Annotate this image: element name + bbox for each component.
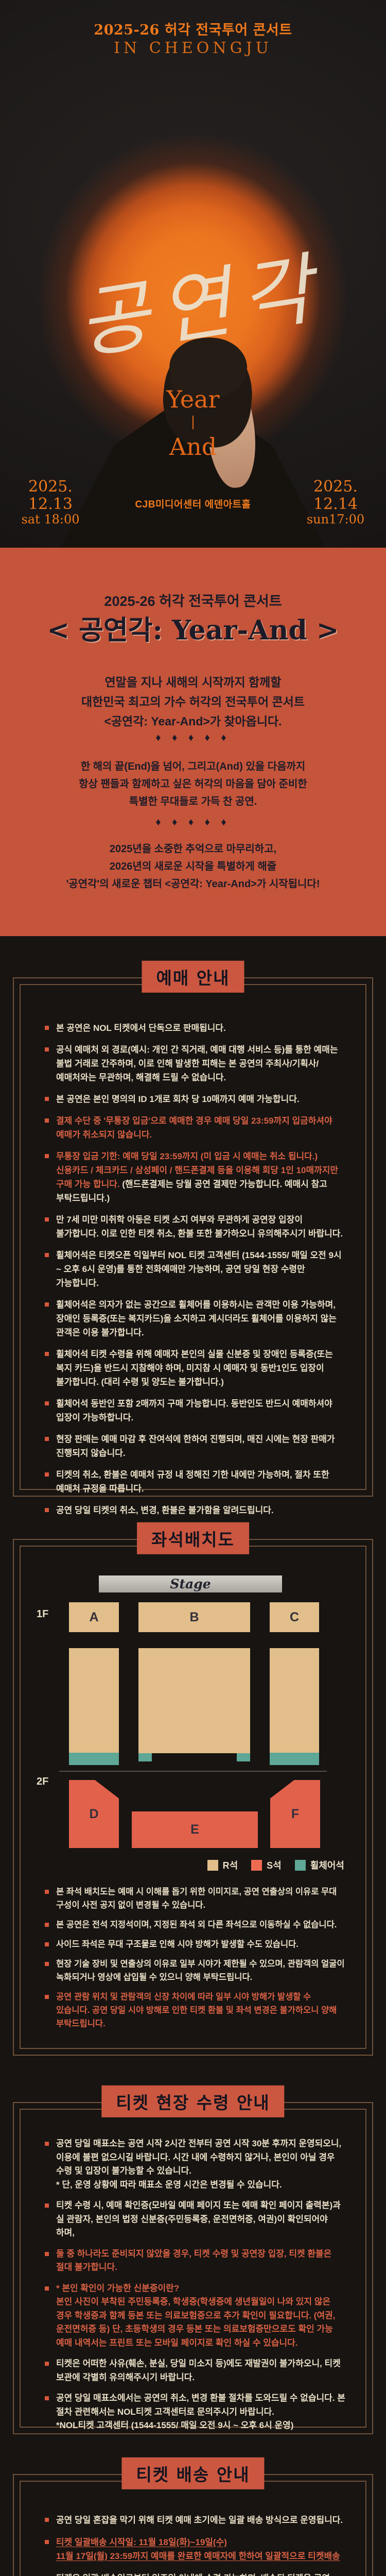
list-item: 휠체어석 동반인 포함 2매까지 구매 가능합니다. 동반인도 반드시 예매하셔… [44, 1397, 346, 1425]
list-item: 현장 기술 장비 및 연출상의 이유로 일부 시야가 제한될 수 있으며, 관람… [44, 1957, 346, 1984]
seatmap-section-title: 좌석배치도 [137, 1522, 249, 1554]
bullet-icon [45, 2362, 49, 2366]
bullet-icon [45, 2286, 49, 2291]
list-item: 만 7세 미만 미취학 아동은 티켓 소지 여부와 무관하게 공연장 입장이 불… [44, 1213, 346, 1241]
notice-text: 결제 수단 중 '무통장 입금'으로 예매한 경우 예매 당일 23:59까지 … [56, 1116, 332, 1140]
booking-section-title: 예매 안내 [142, 961, 244, 993]
diamond-separator: ♦ ♦ ♦ ♦ ♦ [0, 817, 386, 828]
legend-item: 휠체어석 [295, 1858, 344, 1872]
intro-section: 2025-26 허각 전국투어 콘서트 < 공연각: Year-And > 연말… [0, 548, 386, 936]
bullet-icon [45, 2540, 49, 2544]
legend-item: R석 [207, 1858, 238, 1872]
bullet-icon [45, 2142, 49, 2146]
intro-paragraph-2: 한 해의 끝(End)을 넘어, 그리고(And) 있을 다음까지항상 팬들과 … [0, 758, 386, 810]
notice-text: 공연 당일 혼잡을 막기 위해 티켓 예매 초기에는 일괄 배송 방식으로 운영… [56, 2515, 343, 2525]
seatmap-section: 좌석배치도 Stage 1F A B C 2F D E F R석 S석 [13, 1539, 373, 2056]
poster-venue: CJB미디어센터 에덴아트홀 [0, 497, 386, 511]
intro-line: 2026년의 새로운 시작을 특별하게 해줄 [0, 858, 386, 875]
list-item: 티켓 일괄배송 시작일: 11월 18일(화)~19일(수)11월 17일(월)… [44, 2535, 346, 2563]
intro-line: 항상 팬들과 함께하고 싶은 허각의 마음을 담아 준비한 [0, 775, 386, 793]
intro-line: <공연각: Year-And>가 찾아옵니다. [0, 711, 386, 731]
poster: 2025-26 허각 전국투어 콘서트 IN CHEONGJU 공연각 Year… [0, 0, 386, 548]
poster-year-word: Year [0, 385, 386, 413]
delivery-notice-list: 공연 당일 혼잡을 막기 위해 티켓 예매 초기에는 일괄 배송 방식으로 운영… [44, 2513, 346, 2576]
bullet-icon [45, 1401, 49, 1405]
notice-text: 본인 사진이 부착된 주민등록증, 학생증(학생증에 생년월일이 나와 있지 않… [56, 2297, 335, 2334]
diamond-separator: ♦ ♦ ♦ ♦ ♦ [0, 732, 386, 744]
list-item: 티켓은 어떠한 사유(훼손, 분실, 당일 미소지 등)에도 재발권이 불가하오… [44, 2357, 346, 2384]
notice-text: 휠체어석은 의자가 없는 공간으로 휠체어를 이용하시는 관객만 이용 가능하며… [56, 1300, 337, 1337]
list-item: 휠체어석 티켓 수령을 위해 예매자 본인의 실물 신분증 및 장애인 등록증(… [44, 1347, 346, 1389]
list-item: 공식 예매처 외 경로(예시: 개인 간 직거래, 예매 대행 서비스 등)를 … [44, 1043, 346, 1084]
notice-text: * 단, 운영 상황에 따라 매표소 운영 시간은 변경될 수 있습니다. [56, 2180, 282, 2190]
booking-notice-list: 본 공연은 NOL 티켓에서 단독으로 판매됩니다. 공식 예매처 외 경로(예… [44, 1021, 346, 1525]
notice-text: 둘 중 하나라도 준비되지 않았을 경우, 티켓 수령 및 공연장 입장, 티켓… [56, 2249, 331, 2273]
wheelchair-zone-c [270, 1753, 319, 1765]
floor-2f-label: 2F [37, 1776, 48, 1788]
intro-line: '공연각'의 새로운 챕터 <공연각: Year-And>가 시작됩니다! [0, 875, 386, 893]
notice-text: *NOL티켓 고객센터 (1544-1555/ 매일 오전 9시 ~ 오후 6시… [56, 2420, 293, 2430]
list-item: 둘 중 하나라도 준비되지 않았을 경우, 티켓 수령 및 공연장 입장, 티켓… [44, 2247, 346, 2275]
list-item: 무통장 입금 기한: 예매 당일 23:59까지 (미 입금 시 예매는 취소 … [44, 1149, 346, 1205]
notice-text: 예매 내역서는 프린트 또는 모바일 페이지로 확인 하실 수 있습니다. [56, 2338, 298, 2348]
bullet-icon [45, 1026, 49, 1030]
notice-text: 공연 관람 위치 및 관람객의 신장 차이에 따라 일부 시야 방해가 발생할 … [56, 1992, 337, 2028]
legend-swatch [295, 1860, 306, 1871]
notice-text: 현장 기술 장비 및 연출상의 이유로 일부 시야가 제한될 수 있으며, 관람… [56, 1959, 345, 1982]
poster-tour-title: 2025-26 허각 전국투어 콘서트 [0, 19, 386, 39]
notice-text: * 본인 확인이 가능한 신분증이란? [56, 2283, 179, 2293]
intro-line: 특별한 무대들로 가득 찬 공연. [0, 793, 386, 810]
bullet-icon [45, 1472, 49, 1477]
list-item: 결제 수단 중 '무통장 입금'으로 예매한 경우 예매 당일 23:59까지 … [44, 1114, 346, 1142]
notice-text: 휠체어석 티켓 수령을 위해 예매자 본인의 실물 신분증 및 장애인 등록증(… [56, 1349, 333, 1387]
legend-swatch [251, 1860, 262, 1871]
bullet-icon [45, 1437, 49, 1441]
seat-block-c-rear [270, 1648, 319, 1753]
seat-block-b-rear [138, 1648, 250, 1753]
bullet-icon [45, 1047, 49, 1052]
legend-swatch [207, 1860, 218, 1871]
intro-title: < 공연각: Year-And > [0, 608, 386, 647]
notice-text: 공식 예매처 외 경로(예시: 개인 간 직거래, 예매 대행 서비스 등)를 … [56, 1045, 338, 1082]
bullet-icon [45, 1302, 49, 1307]
list-item: 티켓은 일괄 배송일로부터 일주일 이내에 수령 가능하며, 배송된 티켓을 공… [44, 2571, 346, 2576]
bullet-icon [45, 1118, 49, 1123]
seat-block-a: A [69, 1602, 119, 1632]
list-item: 휠체어석은 의자가 없는 공간으로 휠체어를 이용하시는 관객만 이용 가능하며… [44, 1298, 346, 1340]
list-item: 티켓 수령 시, 예매 확인증(모바일 예매 페이지 또는 예매 확인 페이지 … [44, 2199, 346, 2240]
intro-paragraph-1: 연말을 지나 새해의 시작까지 함께할대한민국 최고의 가수 허각의 전국투어 … [0, 672, 386, 731]
list-item: 공연 당일 혼잡을 막기 위해 티켓 예매 초기에는 일괄 배송 방식으로 운영… [44, 2513, 346, 2527]
notice-text: 티켓은 일괄 배송일로부터 일주일 이내에 수령 가능하며, 배송된 티켓을 공… [56, 2573, 330, 2576]
notice-text: 11월 17일(월) 23:59까지 예매를 완료한 예매자에 한하여 일괄적으… [56, 2551, 340, 2561]
bullet-icon [45, 1253, 49, 1257]
poster-city-title: IN CHEONGJU [0, 39, 386, 57]
date-time: sat 18:00 [9, 513, 92, 527]
pickup-section: 티켓 현장 수령 안내 공연 당일 매표소는 공연 시작 2시간 전부터 공연 … [13, 2102, 373, 2434]
bullet-icon [45, 1217, 49, 1222]
wheelchair-zone-b-left [138, 1753, 152, 1761]
floor-1f-label: 1F [37, 1608, 48, 1620]
notice-text: 티켓은 어떠한 사유(훼손, 분실, 당일 미소지 등)에도 재발권이 불가하오… [56, 2359, 341, 2382]
notice-text: 현장 판매는 예매 마감 후 잔여석에 한하여 진행되며, 매진 시에는 현장 … [56, 1434, 335, 1458]
bullet-icon [45, 1962, 49, 1966]
notice-text: 만 7세 미만 미취학 아동은 티켓 소지 여부와 무관하게 공연장 입장이 불… [56, 1215, 343, 1239]
booking-section: 예매 안내 본 공연은 NOL 티켓에서 단독으로 판매됩니다. 공식 예매처 … [13, 977, 373, 1497]
list-item: 티켓의 취소, 환불은 예매처 규정 내 정해진 기한 내에만 가능하며, 절차… [44, 1468, 346, 1496]
seat-block-e: E [132, 1811, 258, 1848]
list-item: 공연 당일 티켓의 취소, 변경, 환불은 불가함을 알려드립니다. [44, 1503, 346, 1517]
notice-text: 본 좌석 배치도는 예매 시 이해를 돕기 위한 이미지로, 공연 연출상의 이… [56, 1887, 337, 1910]
notice-text: 본 공연은 전석 지정석이며, 지정된 좌석 외 다른 좌석으로 이동하실 수 … [56, 1920, 337, 1929]
notice-text: 공연 당일 티켓의 취소, 변경, 환불은 불가함을 알려드립니다. [56, 1505, 274, 1515]
seat-block-a-rear [69, 1648, 119, 1753]
bullet-icon [45, 2252, 49, 2256]
list-item: 사이드 좌석은 무대 구조물로 인해 시야 방해가 발생할 수도 있습니다. [44, 1938, 346, 1951]
intro-line: 연말을 지나 새해의 시작까지 함께할 [0, 672, 386, 692]
notice-text: 공연 당일 매표소는 공연 시작 2시간 전부터 공연 시작 30분 후까지 운… [56, 2139, 341, 2176]
legend-label: S석 [267, 1858, 282, 1872]
poster-and-word: And [0, 433, 386, 461]
pickup-notice-list: 공연 당일 매표소는 공연 시작 2시간 전부터 공연 시작 30분 후까지 운… [44, 2137, 346, 2440]
bullet-icon [45, 2204, 49, 2208]
wheelchair-zone-a [69, 1753, 119, 1765]
wheelchair-zone-b-right [237, 1753, 250, 1761]
list-item: 본 공연은 NOL 티켓에서 단독으로 판매됩니다. [44, 1021, 346, 1035]
list-item: * 본인 확인이 가능한 신분증이란?본인 사진이 부착된 주민등록증, 학생증… [44, 2282, 346, 2350]
notice-text: 휠체어석은 티켓오픈 익일부터 NOL 티켓 고객센터 (1544-1555/ … [56, 1250, 342, 1288]
bullet-icon [45, 2396, 49, 2400]
date-time: sun17:00 [294, 513, 377, 527]
seat-legend: R석 S석 휠체어석 [207, 1858, 344, 1872]
bullet-icon [45, 1942, 49, 1946]
bullet-icon [45, 1508, 49, 1512]
list-item: 공연 관람 위치 및 관람객의 신장 차이에 따라 일부 시야 방해가 발생할 … [44, 1990, 346, 2030]
bullet-icon [45, 1154, 49, 1158]
delivery-section-title: 티켓 배송 안내 [121, 2458, 264, 2489]
delivery-section: 티켓 배송 안내 공연 당일 혼잡을 막기 위해 티켓 예매 초기에는 일괄 배… [13, 2474, 373, 2576]
bullet-icon [45, 1097, 49, 1101]
notice-text: 사이드 좌석은 무대 구조물로 인해 시야 방해가 발생할 수도 있습니다. [56, 1940, 299, 1949]
list-item: 공연 당일 매표소는 공연 시작 2시간 전부터 공연 시작 30분 후까지 운… [44, 2137, 346, 2192]
notice-text: 휠체어석 동반인 포함 2매까지 구매 가능합니다. 동반인도 반드시 예매하셔… [56, 1399, 332, 1422]
intro-line: 2025년을 소중한 추억으로 마무리하고, [0, 840, 386, 858]
notice-text: 티켓 일괄배송 시작일: 11월 18일(화)~19일(수) [56, 2537, 227, 2547]
legend-item: S석 [251, 1858, 282, 1872]
list-item: 본 좌석 배치도는 예매 시 이해를 돕기 위한 이미지로, 공연 연출상의 이… [44, 1885, 346, 1912]
seatmap-notice-list: 본 좌석 배치도는 예매 시 이해를 돕기 위한 이미지로, 공연 연출상의 이… [44, 1885, 346, 2037]
bullet-icon [45, 1352, 49, 1356]
date-year: 2025. [294, 478, 377, 496]
legend-label: 휠체어석 [310, 1858, 344, 1872]
seat-block-b: B [138, 1602, 250, 1632]
notice-text: 티켓 수령 시, 예매 확인증(모바일 예매 페이지 또는 예매 확인 페이지 … [56, 2200, 341, 2238]
list-item: 휠체어석은 티켓오픈 익일부터 NOL 티켓 고객센터 (1544-1555/ … [44, 1248, 346, 1290]
intro-paragraph-3: 2025년을 소중한 추억으로 마무리하고,2026년의 새로운 시작을 특별하… [0, 840, 386, 893]
notice-text: 공연 당일 매표소에서는 공연의 취소, 변경 환불 절차를 도와드릴 수 없습… [56, 2393, 345, 2417]
bullet-icon [45, 1923, 49, 1927]
pickup-section-title: 티켓 현장 수령 안내 [101, 2086, 284, 2117]
list-item: 본 공연은 전석 지정석이며, 지정된 좌석 외 다른 좌석으로 이동하실 수 … [44, 1918, 346, 1931]
floor-divider-line [59, 1771, 327, 1772]
bullet-icon [45, 1995, 49, 1999]
seat-block-c: C [270, 1602, 319, 1632]
notice-text: 본 공연은 본인 명의의 ID 1개로 회차 당 10매까지 예매 가능합니다. [56, 1094, 300, 1104]
list-item: 공연 당일 매표소에서는 공연의 취소, 변경 환불 절차를 도와드릴 수 없습… [44, 2392, 346, 2433]
intro-line: 대한민국 최고의 가수 허각의 전국투어 콘서트 [0, 692, 386, 711]
notice-text: 티켓의 취소, 환불은 예매처 규정 내 정해진 기한 내에만 가능하며, 절차… [56, 1470, 329, 1494]
concert-notice-page: 2025-26 허각 전국투어 콘서트 IN CHEONGJU 공연각 Year… [0, 0, 386, 2576]
legend-label: R석 [223, 1858, 238, 1872]
stage-bar: Stage [99, 1575, 282, 1592]
list-item: 본 공연은 본인 명의의 ID 1개로 회차 당 10매까지 예매 가능합니다. [44, 1092, 346, 1106]
bullet-icon [45, 1890, 49, 1894]
intro-kicker: 2025-26 허각 전국투어 콘서트 [0, 590, 386, 610]
intro-line: 한 해의 끝(End)을 넘어, 그리고(And) 있을 다음까지 [0, 758, 386, 775]
bullet-icon [45, 2518, 49, 2522]
date-year: 2025. [9, 478, 92, 496]
list-item: 현장 판매는 예매 마감 후 잔여석에 한하여 진행되며, 매진 시에는 현장 … [44, 1432, 346, 1460]
poster-divider-glyph: | [0, 414, 386, 430]
notice-text: 본 공연은 NOL 티켓에서 단독으로 판매됩니다. [56, 1023, 226, 1033]
